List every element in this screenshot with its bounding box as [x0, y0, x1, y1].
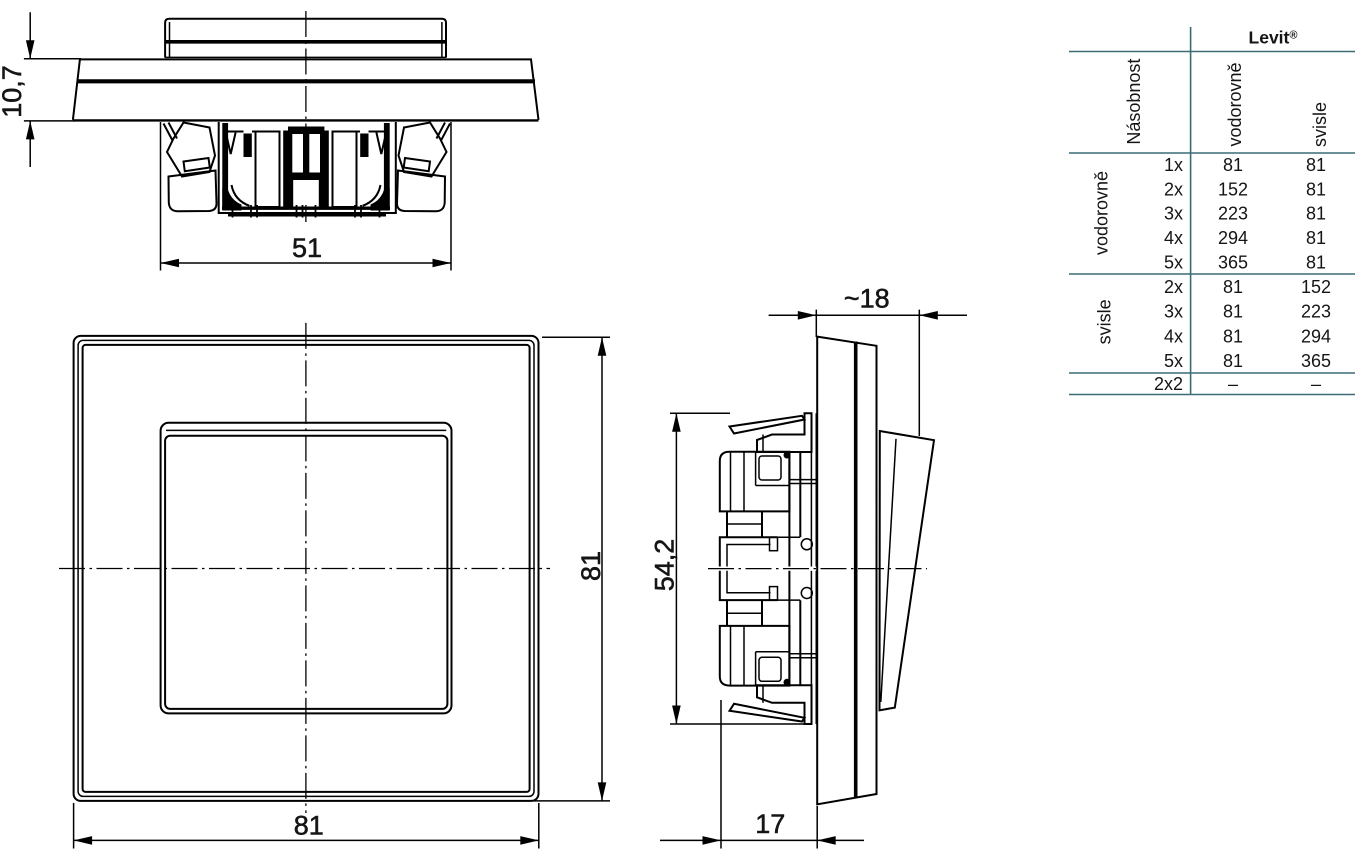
svg-text:81: 81 [1306, 179, 1326, 199]
svg-text:5x: 5x [1164, 252, 1183, 272]
svg-text:365: 365 [1218, 252, 1248, 272]
svg-text:81: 81 [1223, 302, 1243, 322]
svg-text:svisle: svisle [1310, 102, 1330, 147]
svg-text:2x2: 2x2 [1154, 374, 1183, 394]
svg-text:2x: 2x [1164, 179, 1183, 199]
svg-text:Násobnost: Násobnost [1124, 59, 1144, 145]
svg-text:81: 81 [1306, 228, 1326, 248]
svg-text:–: – [1228, 374, 1238, 394]
svg-text:~18: ~18 [844, 284, 890, 314]
svg-text:2x: 2x [1164, 277, 1183, 297]
svg-text:81: 81 [294, 811, 324, 841]
svg-text:152: 152 [1218, 179, 1248, 199]
svg-text:223: 223 [1218, 204, 1248, 224]
svg-text:81: 81 [1306, 204, 1326, 224]
svg-text:365: 365 [1301, 351, 1331, 371]
svg-text:81: 81 [1223, 155, 1243, 175]
svg-text:10,7: 10,7 [0, 65, 27, 118]
svg-text:81: 81 [1306, 155, 1326, 175]
svg-text:4x: 4x [1164, 228, 1183, 248]
svg-text:152: 152 [1301, 277, 1331, 297]
svg-text:223: 223 [1301, 302, 1331, 322]
svg-text:4x: 4x [1164, 326, 1183, 346]
svg-text:81: 81 [1306, 252, 1326, 272]
svg-text:5x: 5x [1164, 351, 1183, 371]
svg-text:1x: 1x [1164, 155, 1183, 175]
svg-text:54,2: 54,2 [650, 539, 680, 592]
svg-text:vodorovně: vodorovně [1091, 171, 1111, 255]
svg-text:81: 81 [576, 551, 606, 581]
svg-text:294: 294 [1218, 228, 1248, 248]
svg-text:svisle: svisle [1095, 299, 1115, 344]
svg-text:81: 81 [1223, 277, 1243, 297]
svg-text:vodorovně: vodorovně [1225, 62, 1245, 146]
svg-text:17: 17 [755, 809, 785, 839]
svg-text:–: – [1311, 374, 1321, 394]
svg-text:3x: 3x [1164, 302, 1183, 322]
svg-text:81: 81 [1223, 351, 1243, 371]
svg-text:3x: 3x [1164, 204, 1183, 224]
svg-text:294: 294 [1301, 326, 1331, 346]
svg-text:81: 81 [1223, 326, 1243, 346]
svg-text:51: 51 [292, 233, 322, 263]
